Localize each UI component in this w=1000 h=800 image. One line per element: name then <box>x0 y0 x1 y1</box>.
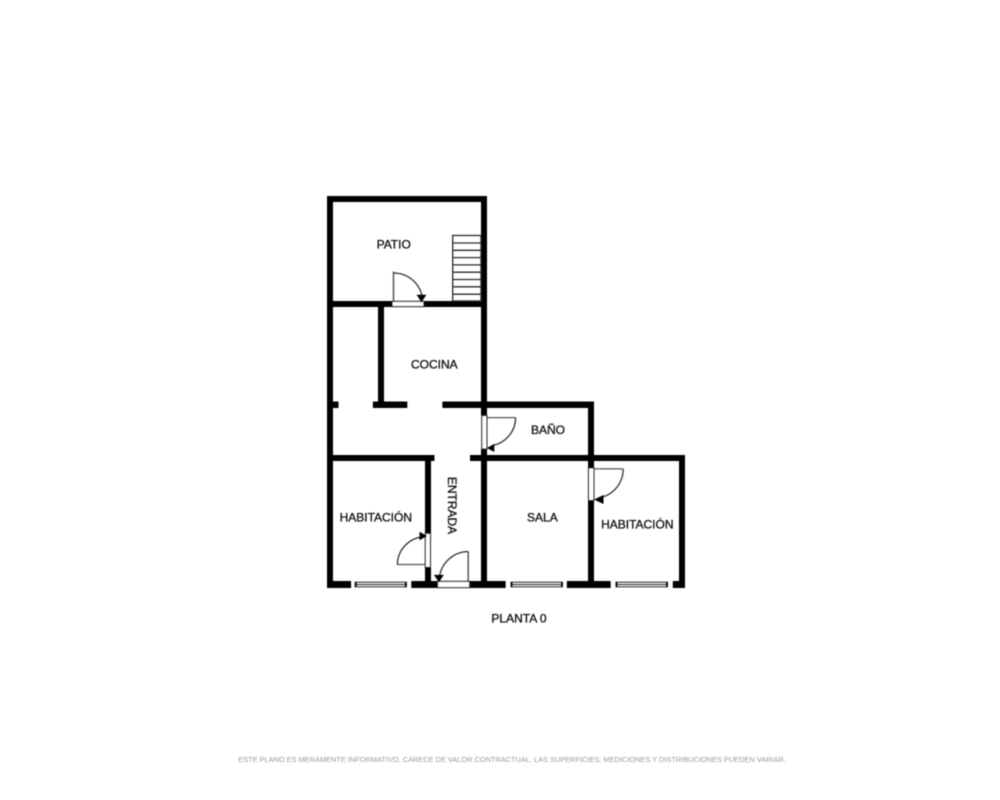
svg-text:HABITACIÓN: HABITACIÓN <box>340 509 412 524</box>
svg-text:PATIO: PATIO <box>377 238 411 252</box>
svg-text:BAÑO: BAÑO <box>531 423 565 437</box>
svg-text:COCINA: COCINA <box>411 357 458 371</box>
svg-text:PLANTA 0: PLANTA 0 <box>491 612 546 626</box>
svg-text:ESTE PLANO ES MERAMENTE INFORM: ESTE PLANO ES MERAMENTE INFORMATIVO, CAR… <box>238 755 786 764</box>
svg-text:SALA: SALA <box>527 511 558 525</box>
svg-text:HABITACIÓN: HABITACIÓN <box>601 517 673 532</box>
svg-text:ENTRADA: ENTRADA <box>445 477 459 534</box>
